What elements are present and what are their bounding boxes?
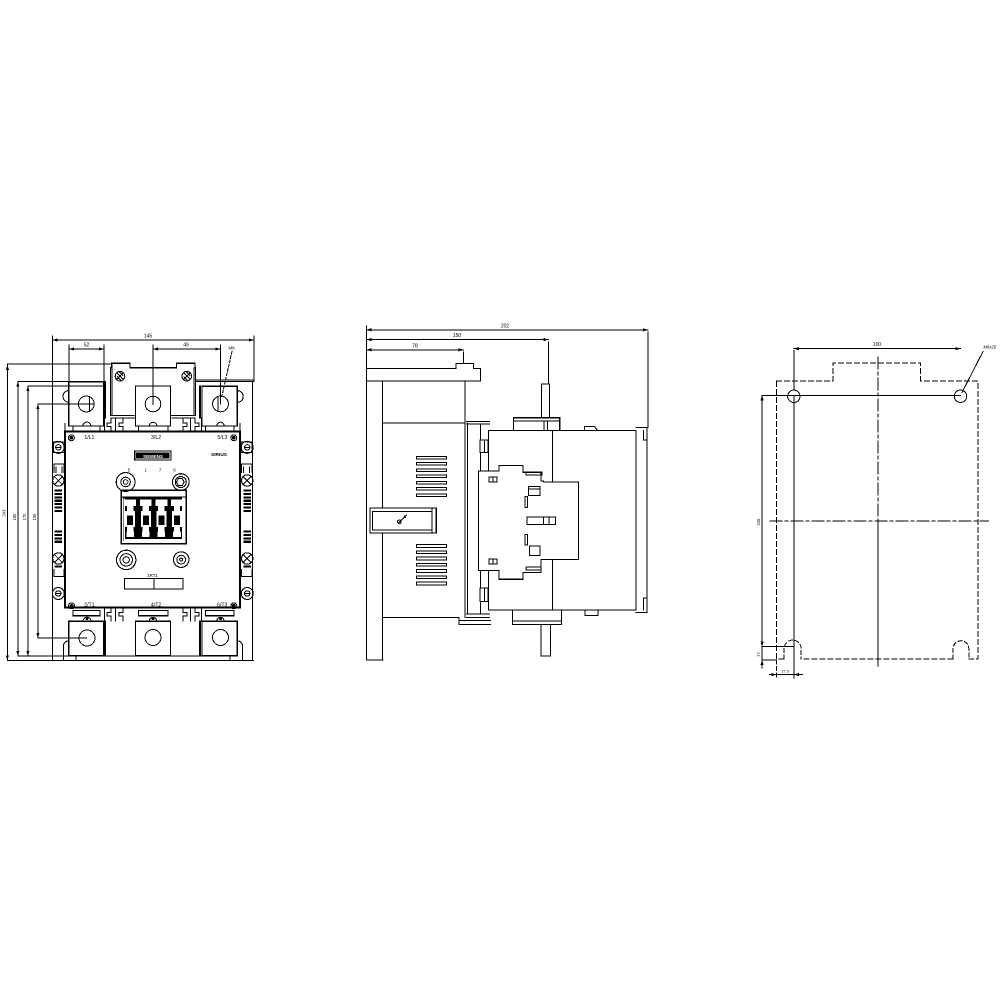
svg-text:17.5: 17.5 — [781, 669, 788, 673]
svg-text:SIRIUS: SIRIUS — [211, 452, 228, 458]
svg-text:150: 150 — [453, 333, 462, 339]
svg-text:12: 12 — [756, 652, 761, 657]
svg-text:6/T3: 6/T3 — [217, 603, 227, 609]
svg-text:170: 170 — [22, 513, 27, 521]
svg-text:M8x25: M8x25 — [984, 345, 997, 350]
svg-text:SIEMENS: SIEMENS — [143, 454, 163, 459]
svg-text:135: 135 — [32, 513, 37, 521]
svg-text:2/T1: 2/T1 — [84, 603, 94, 609]
svg-text:3/L2: 3/L2 — [151, 435, 161, 441]
svg-text:243: 243 — [2, 509, 7, 517]
svg-text:100: 100 — [873, 342, 882, 348]
svg-text:4/T2: 4/T2 — [151, 603, 161, 609]
svg-text:M8: M8 — [228, 346, 235, 351]
svg-text:145: 145 — [144, 334, 153, 340]
svg-text:78: 78 — [412, 343, 418, 349]
svg-text:5/L3: 5/L3 — [217, 435, 227, 441]
svg-text:245: 245 — [756, 518, 761, 526]
svg-text:52: 52 — [84, 343, 90, 349]
svg-text:1/L1: 1/L1 — [84, 435, 94, 441]
svg-text:190: 190 — [12, 513, 17, 521]
svg-text:49: 49 — [183, 343, 189, 349]
svg-text:202: 202 — [501, 323, 510, 329]
svg-text:3RT1: 3RT1 — [147, 573, 158, 578]
